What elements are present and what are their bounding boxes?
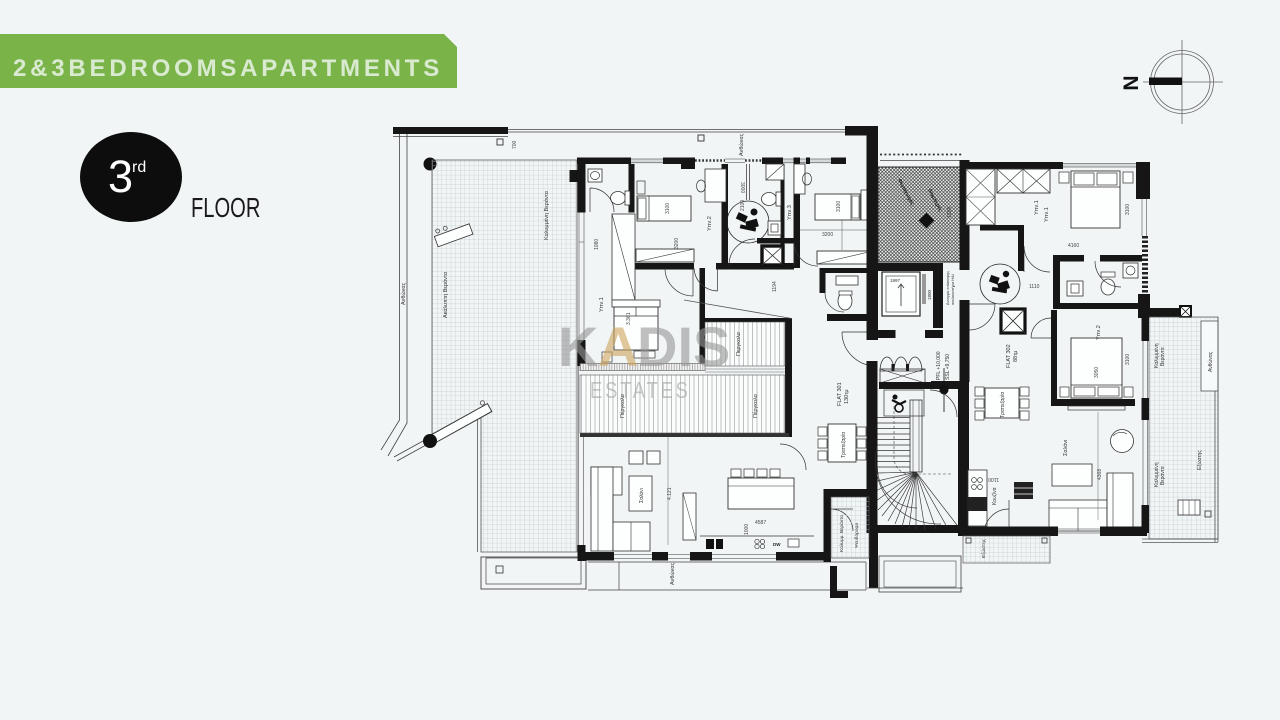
svg-text:Καλυμμένη: Καλυμμένη [1153, 343, 1160, 368]
svg-text:1110: 1110 [1029, 284, 1040, 290]
svg-text:DIS: DIS [637, 315, 730, 378]
svg-text:3100: 3100 [665, 203, 671, 214]
svg-text:3100: 3100 [836, 201, 842, 212]
svg-text:3050: 3050 [1094, 367, 1100, 378]
svg-text:4587: 4587 [755, 520, 766, 526]
svg-text:4160: 4160 [1068, 243, 1079, 249]
svg-text:Υπν.1: Υπν.1 [1034, 200, 1040, 215]
svg-text:1997: 1997 [890, 278, 901, 283]
svg-text:FLOOR: FLOOR [191, 193, 260, 224]
svg-text:Ανθώνας: Ανθώνας [669, 562, 676, 585]
svg-text:Υπν.1: Υπν.1 [1044, 207, 1050, 222]
svg-text:Υπν.3: Υπν.3 [787, 205, 793, 220]
svg-text:Ψευδόροφο: Ψευδόροφο [853, 522, 860, 548]
svg-text:Κουζίνα: Κουζίνα [992, 487, 998, 505]
svg-text:Υπν.2: Υπν.2 [707, 216, 713, 231]
svg-text:FLAT 302: FLAT 302 [1006, 344, 1012, 368]
svg-text:rd: rd [132, 159, 146, 176]
svg-text:N: N [1120, 75, 1143, 90]
svg-text:ESTATES: ESTATES [590, 378, 691, 403]
svg-text:1194: 1194 [772, 281, 778, 292]
svg-text:PFL +10,000: PFL +10,000 [936, 351, 942, 380]
svg-text:Εξώστης: Εξώστης [1196, 450, 1203, 470]
svg-text:Σαλόνι: Σαλόνι [638, 488, 645, 503]
svg-text:700: 700 [512, 140, 518, 149]
svg-text:Τραπεζαρία: Τραπεζαρία [1000, 392, 1006, 418]
svg-text:Βεράντα: Βεράντα [1159, 347, 1166, 366]
svg-text:Περγκολα: Περγκολα [736, 331, 742, 356]
svg-text:3200: 3200 [822, 232, 833, 238]
svg-text:3: 3 [108, 151, 133, 202]
svg-text:A: A [598, 315, 638, 378]
svg-text:ανελκυστήρα H&I: ανελκυστήρα H&I [950, 274, 955, 305]
svg-text:FLAT 301: FLAT 301 [837, 382, 843, 406]
svg-text:88τμ: 88τμ [1013, 351, 1019, 362]
svg-text:Τραπεζαρία: Τραπεζαρία [841, 432, 847, 458]
svg-text:Καλυμμένη: Καλυμμένη [1153, 462, 1160, 487]
svg-text:Υπν.1: Υπν.1 [599, 297, 605, 312]
svg-text:2100: 2100 [740, 200, 746, 211]
svg-text:1800: 1800 [927, 289, 932, 300]
svg-text:Καλυμμένη Βεράντα: Καλυμμένη Βεράντα [543, 190, 550, 240]
svg-text:Ακάλυπτη Βεράντα: Ακάλυπτη Βεράντα [442, 271, 449, 318]
svg-text:Καλυμμ. Βεράντα: Καλυμμ. Βεράντα [838, 515, 845, 552]
svg-text:K: K [558, 315, 598, 378]
svg-text:Ανθώνας: Ανθώνας [1207, 351, 1214, 372]
svg-text:Βεράντα: Βεράντα [1159, 466, 1166, 485]
svg-text:DW: DW [773, 542, 781, 547]
svg-text:1888: 1888 [947, 207, 953, 218]
svg-text:3000: 3000 [739, 182, 745, 193]
svg-text:3200: 3200 [674, 238, 680, 249]
svg-text:Υπν.2: Υπν.2 [1096, 325, 1102, 340]
svg-text:2&3BEDROOMSAPARTMENTS: 2&3BEDROOMSAPARTMENTS [13, 55, 443, 82]
svg-text:Ανθώνας: Ανθώνας [738, 133, 745, 156]
svg-text:SSL +9,750: SSL +9,750 [945, 354, 951, 380]
svg-text:Πέργκολα: Πέργκολα [752, 393, 759, 418]
svg-text:1100: 1100 [988, 476, 999, 482]
svg-text:Εξώστης: Εξώστης [980, 538, 987, 558]
svg-text:3100: 3100 [1125, 204, 1131, 215]
svg-text:3100: 3100 [1125, 354, 1131, 365]
svg-text:1000: 1000 [744, 524, 750, 535]
svg-text:1080: 1080 [594, 239, 600, 250]
svg-text:Σαλόνι: Σαλόνι [1062, 439, 1069, 456]
svg-text:130τμ: 130τμ [844, 389, 850, 404]
svg-text:Ανθώνας: Ανθώνας [400, 282, 407, 305]
